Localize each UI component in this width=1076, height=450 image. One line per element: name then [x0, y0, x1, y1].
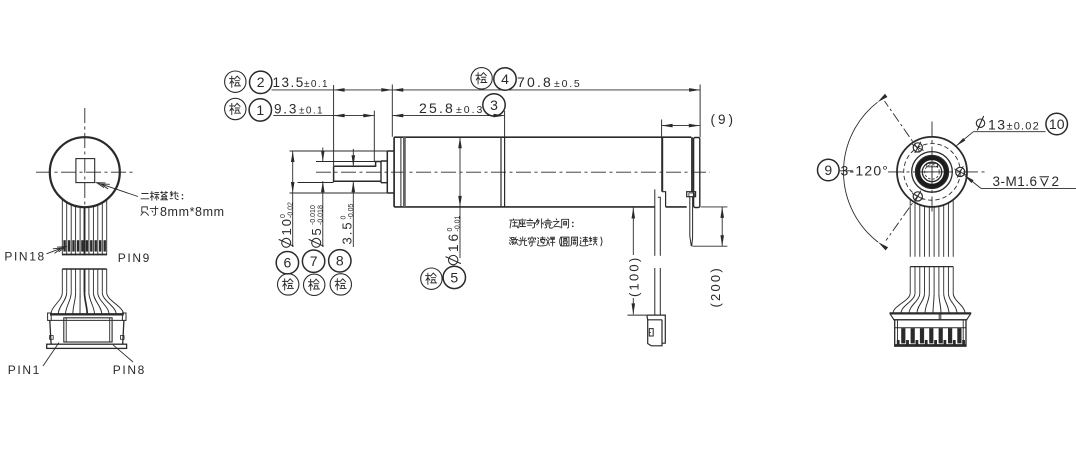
svg-text:2: 2 — [257, 74, 265, 90]
svg-text:8: 8 — [336, 253, 344, 269]
svg-text:16: 16 — [446, 231, 461, 252]
svg-text:6: 6 — [284, 255, 292, 271]
svg-text:±0.1: ±0.1 — [304, 79, 329, 90]
svg-text:3: 3 — [490, 97, 498, 113]
svg-text:10: 10 — [1049, 116, 1065, 132]
svg-text:0: 0 — [340, 216, 347, 220]
svg-text:PIN18: PIN18 — [4, 250, 45, 264]
svg-text:±0.1: ±0.1 — [299, 105, 324, 116]
svg-text:(100): (100) — [626, 256, 641, 297]
svg-text:3.5: 3.5 — [339, 220, 354, 244]
svg-text:(200): (200) — [708, 266, 723, 307]
svg-text:9.3: 9.3 — [274, 101, 298, 116]
svg-text:PIN9: PIN9 — [118, 251, 151, 265]
svg-text:4: 4 — [501, 71, 509, 87]
svg-text:70.8: 70.8 — [517, 74, 553, 90]
svg-text:7: 7 — [310, 253, 318, 269]
svg-text:PIN8: PIN8 — [113, 363, 146, 377]
svg-text:0: 0 — [447, 228, 454, 232]
svg-text:±0.02: ±0.02 — [1007, 120, 1040, 132]
svg-text:-0.05: -0.05 — [348, 203, 355, 219]
svg-text:5: 5 — [450, 269, 458, 285]
svg-text:-0.010: -0.010 — [310, 205, 317, 225]
svg-text:3-M1.6: 3-M1.6 — [993, 174, 1038, 189]
svg-text:PIN1: PIN1 — [8, 363, 41, 377]
svg-text:25.8: 25.8 — [419, 100, 455, 116]
svg-text:10: 10 — [279, 217, 294, 235]
svg-text:13: 13 — [988, 116, 1007, 132]
svg-text:-0.018: -0.018 — [317, 205, 324, 225]
svg-text:0: 0 — [280, 214, 287, 218]
svg-text:(9): (9) — [711, 112, 737, 127]
svg-text:8mm*8mm: 8mm*8mm — [160, 205, 225, 219]
svg-text:-0.01: -0.01 — [454, 215, 461, 231]
svg-text:-0.02: -0.02 — [287, 202, 294, 218]
svg-text:9: 9 — [824, 162, 832, 178]
svg-text:3-120°: 3-120° — [841, 163, 890, 179]
svg-text:2: 2 — [1052, 174, 1061, 189]
svg-text:±0.3: ±0.3 — [456, 104, 484, 116]
svg-text:1: 1 — [256, 102, 264, 118]
svg-text:13.5: 13.5 — [273, 75, 305, 90]
svg-text:±0.5: ±0.5 — [554, 78, 582, 90]
svg-text:5: 5 — [309, 226, 324, 235]
